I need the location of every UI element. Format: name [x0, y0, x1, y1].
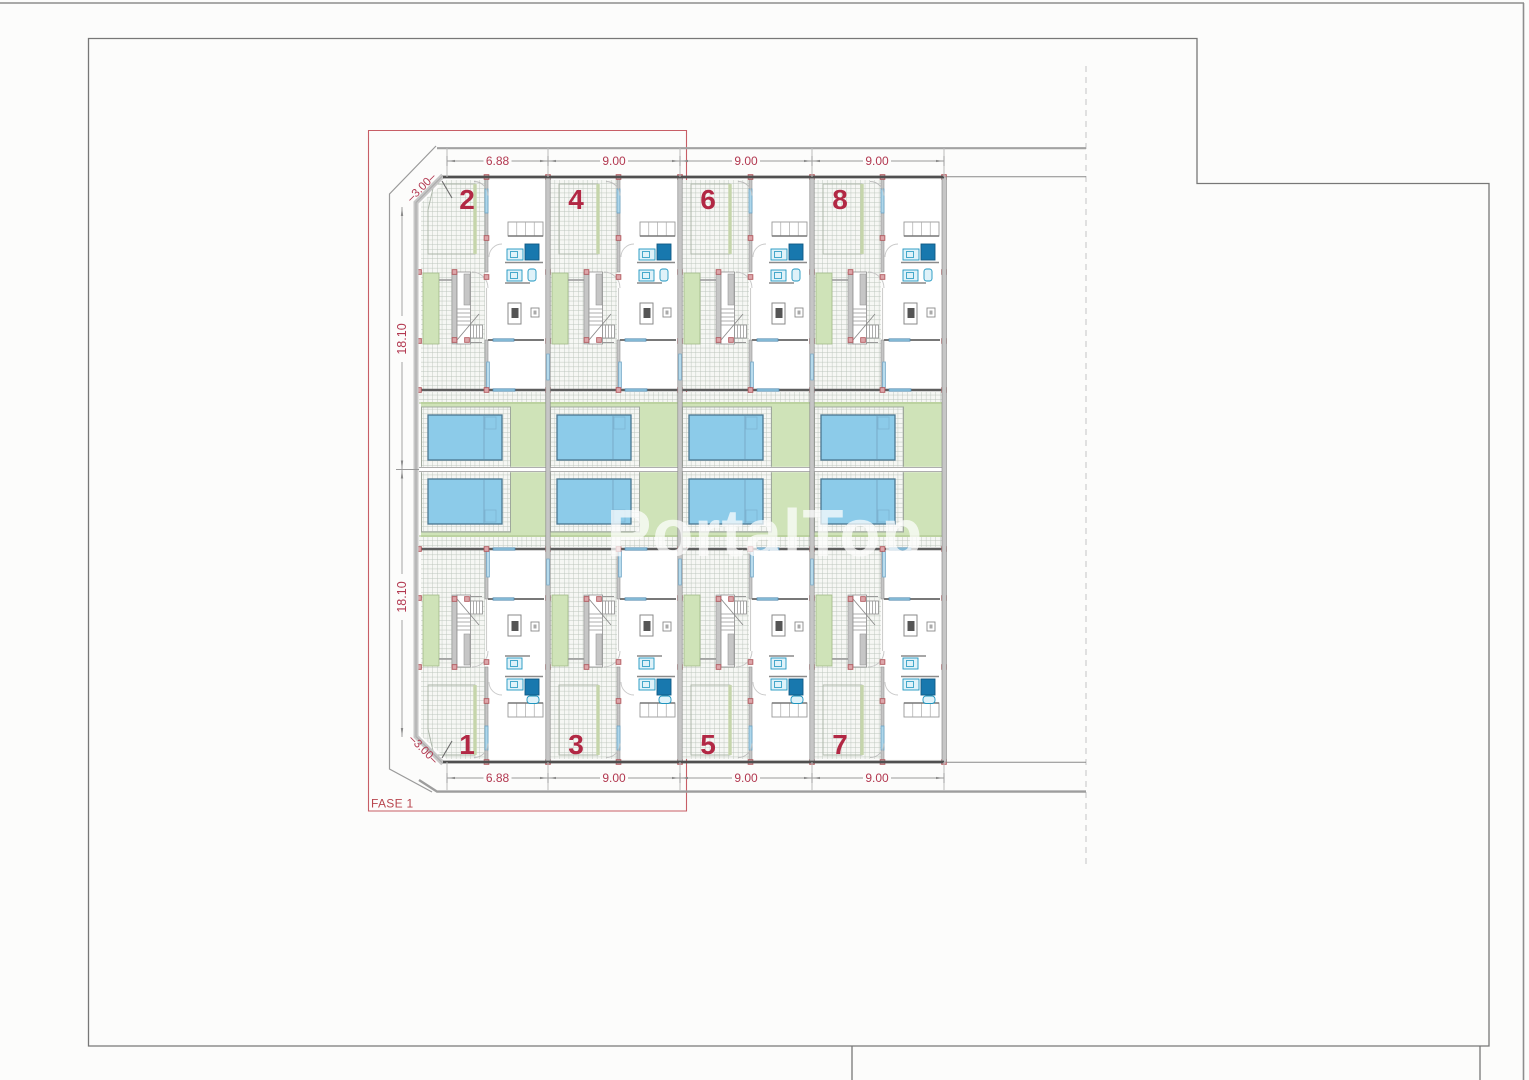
svg-text:9.00: 9.00 [602, 771, 626, 785]
svg-text:18.10: 18.10 [395, 323, 409, 354]
svg-text:9.00: 9.00 [734, 154, 758, 168]
svg-text:9.00: 9.00 [865, 771, 889, 785]
svg-text:FASE 1: FASE 1 [371, 797, 414, 811]
svg-text:6.88: 6.88 [486, 154, 510, 168]
svg-text:4: 4 [568, 184, 584, 215]
svg-text:PortalTop: PortalTop [607, 496, 924, 571]
svg-text:8: 8 [832, 184, 848, 215]
svg-text:18.10: 18.10 [395, 581, 409, 612]
svg-text:7: 7 [832, 729, 848, 760]
svg-text:6.88: 6.88 [486, 771, 510, 785]
svg-text:6: 6 [700, 184, 716, 215]
svg-text:9.00: 9.00 [865, 154, 889, 168]
svg-text:9.00: 9.00 [734, 771, 758, 785]
svg-text:1: 1 [459, 729, 475, 760]
svg-text:9.00: 9.00 [602, 154, 626, 168]
svg-text:5: 5 [700, 729, 716, 760]
svg-text:2: 2 [459, 184, 475, 215]
svg-text:3: 3 [568, 729, 584, 760]
